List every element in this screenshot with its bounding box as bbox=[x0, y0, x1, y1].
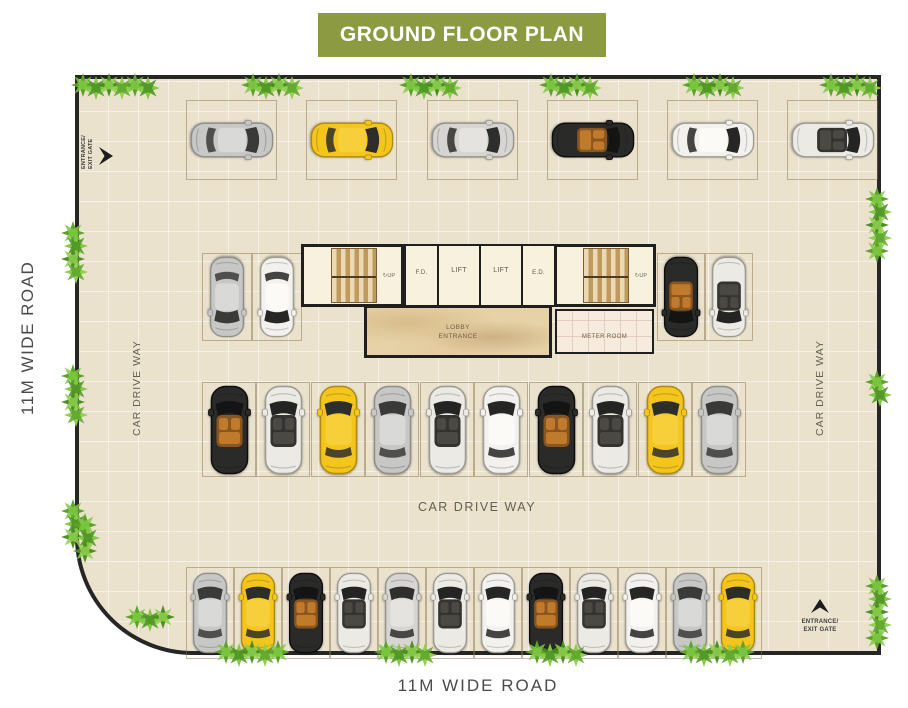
meter-room-label: METER ROOM bbox=[557, 334, 652, 340]
car-conv-black bbox=[286, 571, 326, 655]
fd-label: F.D. bbox=[406, 270, 437, 276]
bottom-road-label: 11M WIDE ROAD bbox=[75, 676, 881, 696]
lobby-entrance-label: LOBBY ENTRANCE bbox=[426, 322, 490, 340]
driveway-label-right: CAR DRIVE WAY bbox=[814, 325, 830, 451]
gate-arrow-up-icon bbox=[809, 597, 831, 619]
driveway-label-left: CAR DRIVE WAY bbox=[131, 325, 147, 451]
parking-stall bbox=[692, 382, 746, 477]
staircase-left: ↻UP bbox=[301, 244, 404, 307]
car-sedan-white bbox=[622, 571, 662, 655]
lift-1-label: LIFT bbox=[439, 267, 479, 274]
car-suv-silver bbox=[697, 385, 742, 475]
car-sedan-white bbox=[479, 385, 524, 475]
car-conv-white bbox=[791, 119, 875, 161]
lift-1: LIFT bbox=[437, 244, 481, 307]
parking-stall bbox=[256, 382, 310, 477]
car-conv-white bbox=[574, 571, 614, 655]
car-hatch-yellow bbox=[718, 571, 758, 655]
parking-stall bbox=[186, 567, 234, 659]
stair-treads-left bbox=[331, 248, 377, 303]
parking-stall bbox=[365, 382, 419, 477]
car-conv-white bbox=[588, 385, 633, 475]
lobby-entrance: LOBBY ENTRANCE bbox=[364, 305, 552, 358]
parking-stall bbox=[705, 253, 753, 341]
parking-stall bbox=[282, 567, 330, 659]
parking-stall bbox=[583, 382, 637, 477]
gate-arrow-right-icon bbox=[93, 145, 115, 167]
car-suv-silver bbox=[370, 385, 415, 475]
parking-stall bbox=[618, 567, 666, 659]
parking-stall bbox=[667, 100, 758, 180]
ed-label: E.D. bbox=[523, 270, 554, 276]
title-banner: GROUND FLOOR PLAN bbox=[318, 13, 606, 57]
car-sedan-white bbox=[478, 571, 518, 655]
left-road-label: 11M WIDE ROAD bbox=[18, 232, 42, 444]
car-sedan-white bbox=[671, 119, 755, 161]
electrical-duct-room: E.D. bbox=[521, 244, 556, 307]
car-conv-white bbox=[425, 385, 470, 475]
parking-stall bbox=[234, 567, 282, 659]
parking-stall bbox=[474, 567, 522, 659]
car-conv-black bbox=[526, 571, 566, 655]
parking-stall bbox=[186, 100, 277, 180]
parking-stall bbox=[252, 253, 302, 341]
car-suv-silver bbox=[207, 256, 247, 338]
parking-stall bbox=[311, 382, 365, 477]
car-suv-silver bbox=[190, 119, 274, 161]
parking-stall bbox=[666, 567, 714, 659]
staircase-right: ↻UP bbox=[554, 244, 656, 307]
car-conv-black bbox=[661, 256, 701, 338]
stairs-up-label-right: ↻UP bbox=[635, 273, 647, 279]
car-conv-white bbox=[709, 256, 749, 338]
car-sedan-white bbox=[257, 256, 297, 338]
parking-stall bbox=[202, 253, 252, 341]
car-hatch-yellow bbox=[238, 571, 278, 655]
car-conv-white bbox=[261, 385, 306, 475]
parking-stall bbox=[330, 567, 378, 659]
page-title: GROUND FLOOR PLAN bbox=[340, 23, 584, 47]
car-sedan-silver bbox=[382, 571, 422, 655]
parking-stall bbox=[427, 100, 518, 180]
stairs-up-label-left: ↻UP bbox=[383, 273, 395, 279]
parking-stall bbox=[787, 100, 878, 180]
parking-stall bbox=[714, 567, 762, 659]
parking-stall bbox=[638, 382, 692, 477]
car-suv-silver bbox=[190, 571, 230, 655]
fire-duct-room: F.D. bbox=[404, 244, 439, 307]
parking-lot-area: ↻UP F.D. LIFT LIFT E.D. ↻UP LOBBY ENTRAN… bbox=[75, 75, 881, 655]
car-hatch-yellow bbox=[316, 385, 361, 475]
parking-stall bbox=[547, 100, 638, 180]
parking-stall bbox=[420, 382, 474, 477]
floor-plan: GROUND FLOOR PLAN 11M WIDE ROAD 11M WIDE… bbox=[0, 0, 908, 708]
parking-stall bbox=[202, 382, 256, 477]
car-conv-black bbox=[207, 385, 252, 475]
parking-stall bbox=[306, 100, 397, 180]
parking-stall bbox=[529, 382, 583, 477]
lift-2: LIFT bbox=[479, 244, 523, 307]
parking-stall bbox=[522, 567, 570, 659]
parking-stall bbox=[570, 567, 618, 659]
car-conv-black bbox=[551, 119, 635, 161]
parking-stall bbox=[657, 253, 705, 341]
car-sedan-silver bbox=[431, 119, 515, 161]
car-conv-white bbox=[334, 571, 374, 655]
driveway-label-center: CAR DRIVE WAY bbox=[379, 500, 575, 514]
parking-stall bbox=[426, 567, 474, 659]
car-suv-silver bbox=[670, 571, 710, 655]
gate-label-bottom-right: ENTRANCE/ EXIT GATE bbox=[801, 619, 839, 635]
parking-stall bbox=[378, 567, 426, 659]
car-hatch-yellow bbox=[310, 119, 394, 161]
parking-stalls-layer bbox=[79, 79, 877, 651]
lift-2-label: LIFT bbox=[481, 267, 521, 274]
car-conv-white bbox=[430, 571, 470, 655]
car-conv-black bbox=[534, 385, 579, 475]
meter-room: METER ROOM bbox=[555, 309, 654, 354]
parking-stall bbox=[474, 382, 528, 477]
car-hatch-yellow bbox=[643, 385, 688, 475]
stair-treads-right bbox=[583, 248, 629, 303]
